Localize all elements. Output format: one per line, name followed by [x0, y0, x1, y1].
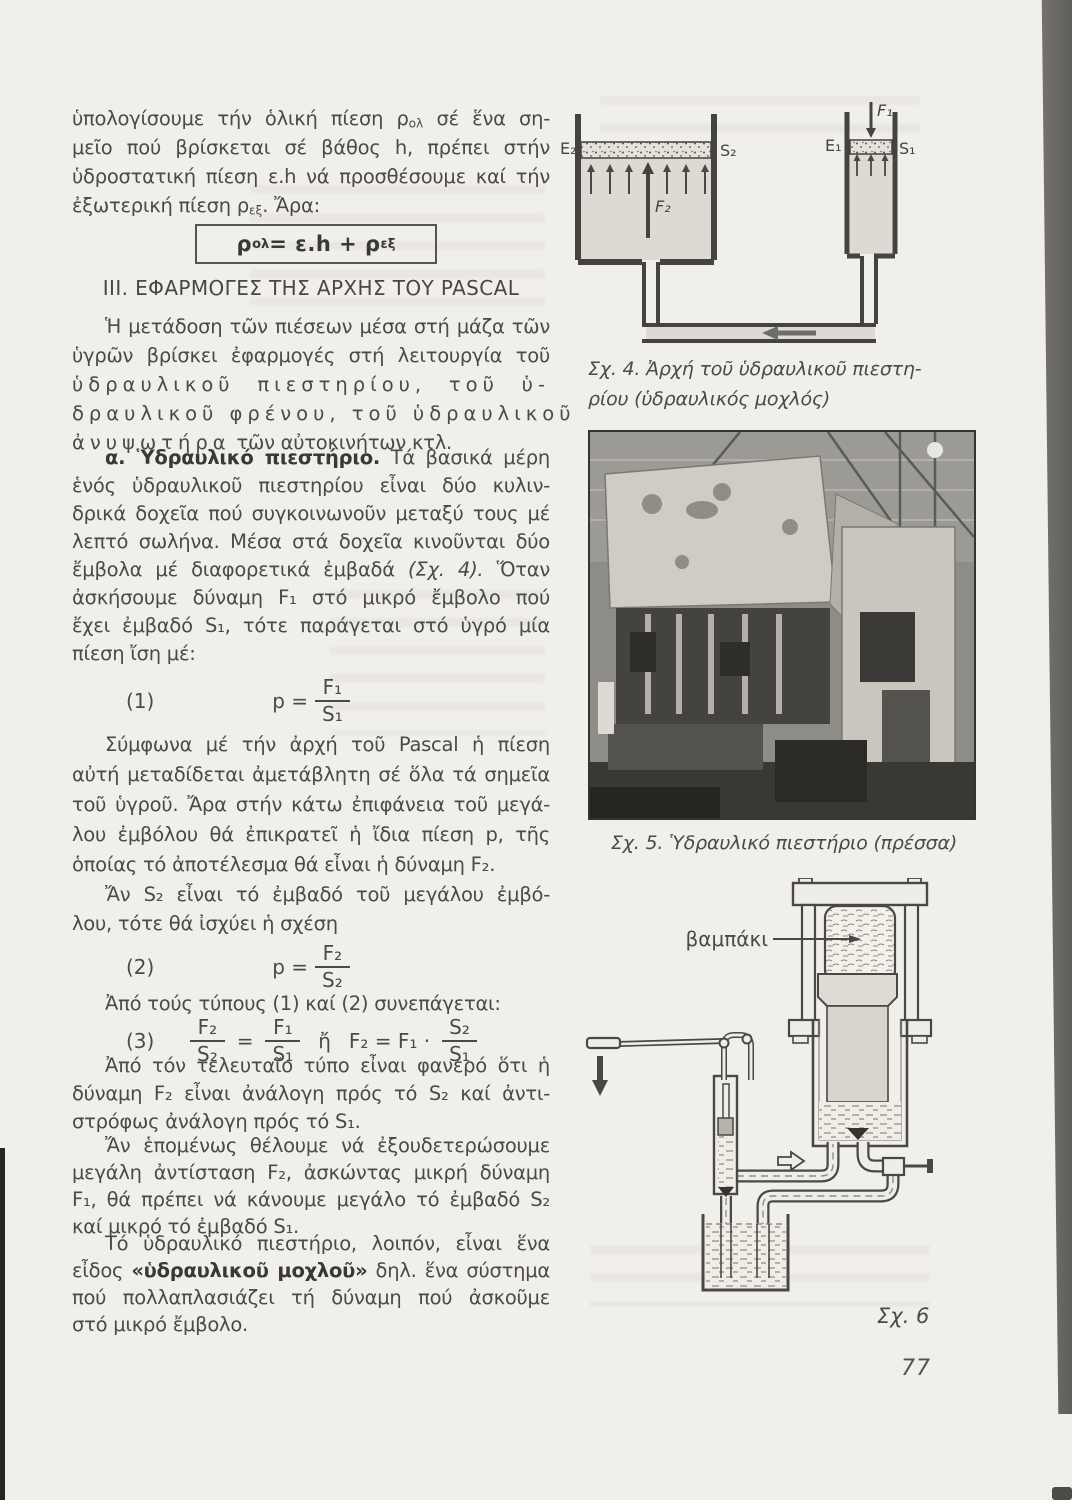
- text-line: ἔχει ἐμβαδό S₁, τότε παράγεται στό ὑγρό …: [72, 612, 550, 640]
- label-e1: E₁: [825, 136, 842, 155]
- text-line: Ἀπό τόν τελευταῖο τύπο εἶναι φανερό ὅτι …: [72, 1052, 550, 1080]
- scan-edge-right: [1036, 0, 1072, 1414]
- label-e2: E₂: [560, 139, 577, 158]
- foreground-block: [775, 740, 867, 802]
- text-line: τοῦ ὑγροῦ. Ἄρα στήν κάτω ἐπιφάνεια τοῦ μ…: [72, 790, 550, 820]
- text-segment: εἶδος: [72, 1259, 131, 1282]
- fraction-denominator: S₁: [315, 700, 350, 725]
- figure-4-caption-line1: Σχ. 4. Ἀρχή τοῦ ὑδραυλικοῦ πιεστη-: [588, 358, 921, 380]
- text-line: F₁, θά πρέπει νά κάνουμε μεγάλο τό ἐμβαδ…: [72, 1186, 550, 1213]
- large-piston: [581, 142, 711, 158]
- text-line: λεπτό σωλήνα. Μέσα στά δοχεῖα κινοῦνται …: [72, 528, 550, 556]
- foreground-machine: [608, 724, 763, 770]
- label-f2: F₂: [655, 197, 671, 216]
- pump-liquid: [718, 1136, 733, 1188]
- text-segment-italic: (Σχ. 4).: [408, 558, 483, 581]
- paragraph-hydraulic-press: α. Ὑδραυλικό πιεστήριο. Τά βασικά μέρη ἑ…: [72, 444, 550, 668]
- subscript: εξ: [249, 204, 262, 218]
- equation-number: (2): [126, 955, 154, 979]
- text-line-emphasized: ὑδραυλικοῦ πιεστηρίου, τοῦ ὑ-: [72, 370, 550, 399]
- subscript: εξ: [381, 237, 396, 252]
- formula-segment: = ε.h + ρ: [269, 232, 380, 256]
- fraction-numerator: S₂: [442, 1017, 477, 1040]
- text-line: εἶδος «ὑδραυλικοῦ μοχλοῦ» δηλ. ἕνα σύστη…: [72, 1257, 550, 1284]
- paragraph-proportionality: Ἀπό τόν τελευταῖο τύπο εἶναι φανερό ὅτι …: [72, 1052, 550, 1136]
- subscript: ολ: [252, 237, 269, 252]
- figure-6-diagram: βαμπάκι: [585, 878, 1005, 1306]
- worker-figure: [598, 682, 614, 734]
- paragraph-large-piston: Ἄν S₂ εἶναι τό ἐμβαδό τοῦ μεγάλου ἐμβό- …: [72, 880, 550, 938]
- figure-5-photo: [588, 430, 976, 820]
- scan-edge-left: [0, 1148, 5, 1500]
- press-ram: [827, 1006, 888, 1102]
- text-line: ἀσκήσουμε δύναμη F₁ στό μικρό ἔμβολο πού: [72, 584, 550, 612]
- fraction: F₁S₁: [315, 677, 350, 725]
- press-ram-head: [818, 974, 897, 1006]
- equation-number: (3): [126, 1029, 154, 1053]
- lever-handle: [587, 1038, 620, 1048]
- pump-cylinder: [714, 1076, 737, 1197]
- equation-mid: F₂ = F₁ ·: [349, 1029, 430, 1053]
- fraction-numerator: F₁: [316, 677, 350, 700]
- text-segment-bold: α. Ὑδραυλικό πιεστήριο.: [105, 446, 380, 469]
- text-line: μεῖο πού βρίσκεται σέ βάθος h, πρέπει στ…: [72, 133, 550, 162]
- section-heading: III. ΕΦΑΡΜΟΓΕΣ ΤΗΣ ΑΡΧΗΣ ΤΟΥ PASCAL: [72, 276, 550, 300]
- label-s2: S₂: [720, 141, 737, 160]
- paragraph-resistance: Ἄν ἑπομένως θέλουμε νά ἐξουδετερώσουμε μ…: [72, 1132, 550, 1240]
- equals-sign: =: [237, 1029, 254, 1053]
- text-line: ἑνός ὑδραυλικοῦ πιεστηρίου εἶναι δύο κυλ…: [72, 472, 550, 500]
- reservoir-tank: [703, 1214, 788, 1290]
- text-line: λου ἐμβόλου θά ἐπικρατεῖ ἡ ἴδια πίεση p,…: [72, 820, 550, 850]
- cotton-bale: [825, 906, 895, 982]
- equation-1: (1) p = F₁S₁: [72, 672, 550, 730]
- text-segment: ἔμβολα μέ διαφορετικά ἐμβαδά: [72, 558, 408, 581]
- text-line: α. Ὑδραυλικό πιεστήριο. Τά βασικά μέρη: [72, 444, 550, 472]
- fraction-denominator: S₂: [315, 966, 350, 991]
- text-line: δρικά δοχεῖα πού συγκοινωνοῦν μεταξύ του…: [72, 500, 550, 528]
- text-segment: . Ἄρα:: [262, 194, 320, 217]
- text-segment-bold: «ὑδραυλικοῦ μοχλοῦ»: [131, 1259, 367, 1282]
- text-line: ὁποίας τό ἀποτέλεσμα θά εἶναι ἡ δύναμη F…: [72, 850, 550, 880]
- cotton-label: βαμπάκι: [686, 927, 769, 951]
- figure-5-caption: Σχ. 5. Ὑδραυλικό πιεστήριο (πρέσσα): [588, 832, 980, 854]
- text-line-emphasized: δραυλικοῦ φρένου, τοῦ ὑδραυλικοῦ: [72, 399, 550, 428]
- fraction: F₂S₂: [315, 943, 350, 991]
- text-segment: ὑπολογίσουμε τήν ὁλική πίεση ρ: [72, 107, 409, 130]
- release-valve: [883, 1158, 933, 1175]
- text-line: Σύμφωνα μέ τήν ἀρχή τοῦ Pascal ἡ πίεση: [72, 730, 550, 760]
- label-s1: S₁: [899, 139, 916, 158]
- equation-number: (1): [126, 689, 154, 713]
- press-head: [605, 456, 836, 608]
- text-line: πού πολλαπλασιάζει τή δύναμη πού ἀσκοῦμε: [72, 1284, 550, 1311]
- text-line: ὑπολογίσουμε τήν ὁλική πίεση ρολ σέ ἕνα …: [72, 104, 550, 133]
- lever-pivot: [743, 1035, 752, 1044]
- text-line: μεγάλη ἀντίσταση F₂, ἀσκώντας μικρή δύνα…: [72, 1159, 550, 1186]
- paragraph-pascal-principle: Σύμφωνα μέ τήν ἀρχή τοῦ Pascal ἡ πίεση α…: [72, 730, 550, 880]
- fraction-numerator: F₁: [266, 1017, 300, 1040]
- small-piston: [850, 140, 892, 154]
- scanned-textbook-page: ὑπολογίσουμε τήν ὁλική πίεση ρολ σέ ἕνα …: [0, 0, 1072, 1500]
- text-line: Ἄν S₂ εἶναι τό ἐμβαδό τοῦ μεγάλου ἐμβό-: [72, 880, 550, 909]
- equation-2: (2) p = F₂S₂: [72, 938, 550, 996]
- equation-lhs: p =: [272, 955, 308, 979]
- text-segment: Τά βασικά μέρη: [380, 446, 550, 469]
- text-line: ἔμβολα μέ διαφορετικά ἐμβαδά (Σχ. 4). Ὅτ…: [72, 556, 550, 584]
- text-line: Ἄν ἑπομένως θέλουμε νά ἐξουδετερώσουμε: [72, 1132, 550, 1159]
- page-number: 77: [901, 1356, 931, 1381]
- or-word: ἤ: [312, 1029, 337, 1053]
- force-f1-arrow: [866, 102, 876, 138]
- text-line: Ἡ μετάδοση τῶν πιέσεων μέσα στή μάζα τῶν: [72, 312, 550, 341]
- text-line: ὑδροστατική πίεση ε.h νά προσθέσουμε καί…: [72, 162, 550, 191]
- equation-lhs: p =: [272, 689, 308, 713]
- text-line: Τό ὑδραυλικό πιεστήριο, λοιπόν, εἶναι ἕν…: [72, 1230, 550, 1257]
- lamp-highlight: [927, 442, 943, 458]
- text-segment: ἐξωτερική πίεση ρ: [72, 194, 249, 217]
- text-line: στό μικρό ἔμβολο.: [72, 1311, 550, 1338]
- text-line: ὑγρῶν βρίσκει ἐφαρμογές στή λειτουργία τ…: [72, 341, 550, 370]
- label-f1: F₁: [877, 101, 893, 120]
- fraction-numerator: F₂: [316, 943, 350, 966]
- text-segment: σέ ἕνα ση-: [423, 107, 550, 130]
- lever-pivot: [720, 1039, 729, 1048]
- floor-shadow: [590, 787, 720, 818]
- reservoir-liquid: [706, 1224, 786, 1288]
- text-line: αὐτή μεταδίδεται ἀμετάβλητη σέ ὅλα τά ση…: [72, 760, 550, 790]
- text-line: δύναμη F₂ εἶναι ἀνάλογη πρός τό S₂ καί ἀ…: [72, 1080, 550, 1108]
- text-line: λου, τότε θά ἰσχύει ἡ σχέση: [72, 909, 550, 938]
- text-line: ἐξωτερική πίεση ρεξ. Ἄρα:: [72, 191, 550, 220]
- fraction-numerator: F₂: [191, 1017, 225, 1040]
- figure-6-label: Σχ. 6: [877, 1304, 929, 1328]
- tube-liquid: [646, 327, 875, 339]
- text-segment: Ὅταν: [483, 558, 550, 581]
- paragraph-intro: ὑπολογίσουμε τήν ὁλική πίεση ρολ σέ ἕνα …: [72, 104, 550, 220]
- flow-arrow: [778, 1152, 804, 1170]
- text-segment: δηλ. ἕνα σύστημα: [367, 1259, 550, 1282]
- second-press-panel: [860, 612, 915, 682]
- pressure-formula-box: ρολ = ε.h + ρεξ: [195, 224, 437, 264]
- paragraph-applications: Ἡ μετάδοση τῶν πιέσεων μέσα στή μάζα τῶν…: [72, 312, 550, 457]
- scan-edge-mark: [1052, 1487, 1072, 1500]
- subscript: ολ: [409, 117, 424, 131]
- pump-piston: [718, 1118, 733, 1135]
- text-line: πίεση ἴση μέ:: [72, 640, 550, 668]
- pump-pi­ston-rod: [723, 1084, 729, 1120]
- pump-lever: [587, 1035, 752, 1081]
- formula-segment: ρ: [237, 232, 253, 256]
- handle-force-arrow: [592, 1056, 608, 1096]
- paragraph-hydraulic-lever: Τό ὑδραυλικό πιεστήριο, λοιπόν, εἶναι ἕν…: [72, 1230, 550, 1338]
- figure-4-diagram: E₂ S₂ E₁ S₁ F₁ F₂: [558, 96, 1006, 348]
- figure-4-caption-line2: ρίου (ὑδραυλικός μοχλός): [588, 388, 830, 410]
